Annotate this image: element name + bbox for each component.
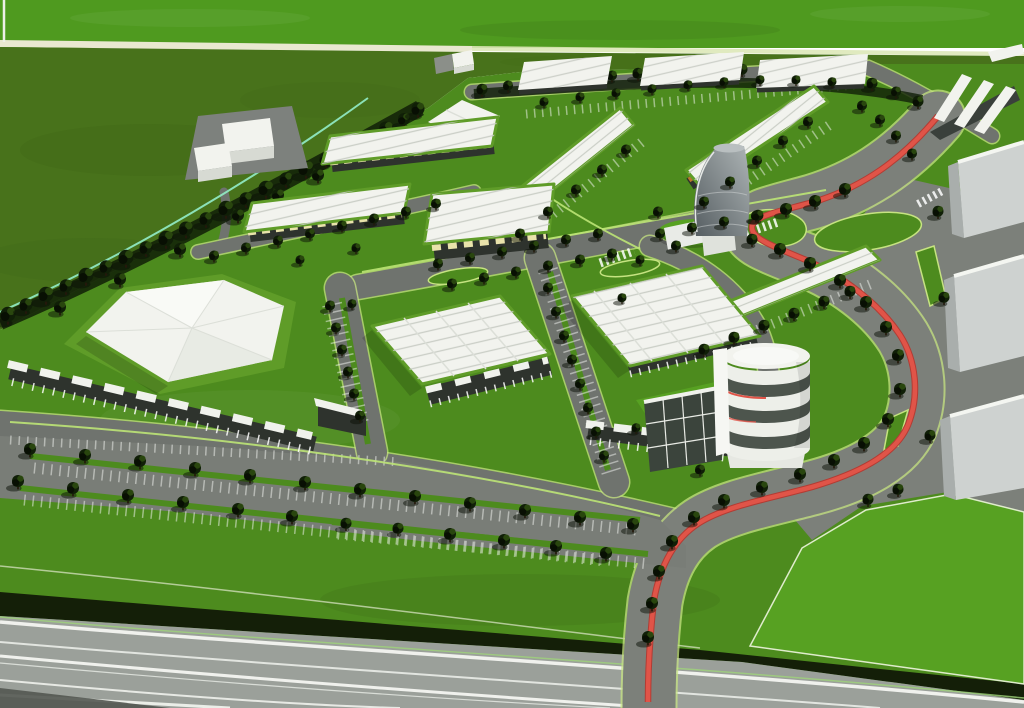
concrete-box <box>944 256 1024 372</box>
glass-wing <box>644 388 722 472</box>
far-field <box>0 0 1024 48</box>
utility-building <box>194 143 232 171</box>
utility-building <box>222 118 274 152</box>
rendering-canvas: Aerial 3D architectural rendering of a b… <box>0 0 1024 708</box>
drum-fin <box>713 348 730 456</box>
warehouse-small <box>756 54 868 90</box>
right-edge-buildings <box>940 142 1024 500</box>
masterplan-rendering: Aerial 3D architectural rendering of a b… <box>0 0 1024 708</box>
